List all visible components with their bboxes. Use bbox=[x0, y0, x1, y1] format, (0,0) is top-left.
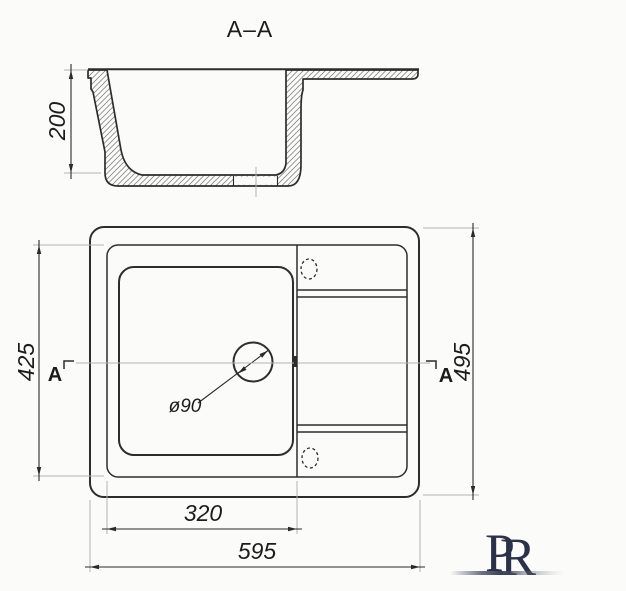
tap-hole-bottom bbox=[302, 448, 318, 468]
arrowhead bbox=[90, 565, 99, 569]
arrowhead bbox=[37, 245, 41, 254]
arrowhead bbox=[107, 527, 116, 531]
logo-letter-r: R bbox=[500, 530, 536, 584]
arrowhead bbox=[411, 565, 420, 569]
dim-bowl-width-320: 320 bbox=[102, 481, 302, 534]
section-marker-left: A bbox=[48, 361, 74, 386]
bowl-width-dim-label: 320 bbox=[184, 500, 223, 526]
overall-width-dim-label: 595 bbox=[238, 538, 277, 564]
arrowhead bbox=[288, 527, 297, 531]
inner-length-dim-label: 425 bbox=[13, 343, 39, 382]
overall-depth-dim-label: 495 bbox=[449, 343, 475, 382]
drawing-canvas: A–A 200 bbox=[0, 0, 626, 591]
arrowhead bbox=[37, 467, 41, 476]
arrowhead bbox=[471, 228, 475, 237]
arrowhead bbox=[471, 486, 475, 495]
depth-dim-label: 200 bbox=[44, 102, 70, 142]
arrowhead bbox=[69, 70, 73, 79]
brand-logo: P R bbox=[482, 526, 622, 586]
drain-diameter-label: ø90 bbox=[169, 396, 202, 417]
section-material-profile bbox=[88, 70, 418, 186]
section-marker-letter: A bbox=[48, 364, 62, 386]
section-title: A–A bbox=[227, 16, 273, 42]
section-cut-tick bbox=[294, 356, 298, 367]
section-marker-bracket bbox=[64, 361, 74, 369]
section-view: A–A 200 bbox=[44, 16, 419, 197]
dim-overall-width-595: 595 bbox=[85, 500, 425, 572]
logo-swoosh bbox=[450, 571, 564, 575]
technical-drawing: A–A 200 bbox=[0, 0, 626, 591]
tap-hole-top bbox=[301, 259, 317, 279]
bowl-edge bbox=[119, 267, 293, 455]
sink-rim-inner-edge bbox=[107, 245, 407, 477]
plan-view: ø90 A A 425 495 bbox=[13, 223, 479, 572]
arrowhead bbox=[69, 164, 73, 173]
arrowhead bbox=[260, 351, 269, 358]
section-marker-bracket bbox=[426, 361, 436, 369]
